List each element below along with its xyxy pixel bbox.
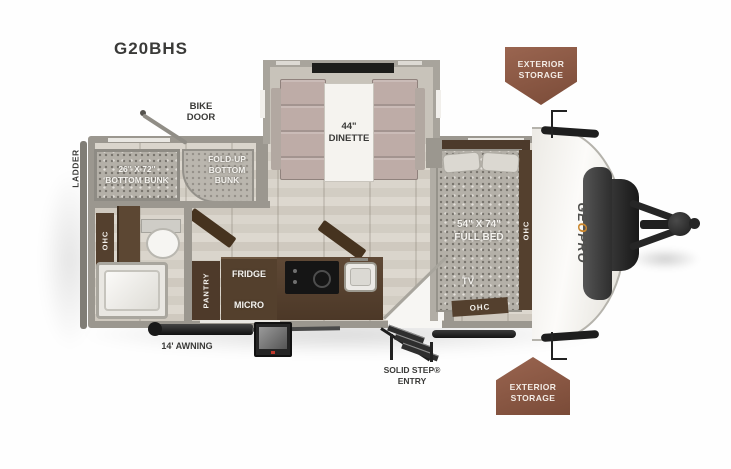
dinette-rear-window (312, 63, 394, 73)
full-bed-label: 54" X 74" FULL BED (436, 219, 522, 244)
geo-pro-logo: GEOPRO (574, 181, 590, 285)
exterior-tv-light (271, 351, 275, 354)
exterior-storage-label-top: EXTERIOR STORAGE (518, 59, 565, 82)
wardrobe-cabinet (117, 206, 140, 266)
bathroom-ohc-label: OHC (101, 230, 110, 250)
pantry-label: PANTRY (202, 273, 211, 309)
toilet (146, 228, 180, 259)
pillow (442, 151, 481, 173)
dinette-bench-left (280, 79, 326, 180)
awning-roller (151, 324, 253, 335)
cap-corner-mark-bottom (551, 332, 567, 360)
dinette-bench-right (372, 79, 418, 180)
awning-label: 14' AWNING (144, 341, 230, 351)
dinette-table: 44" DINETTE (324, 83, 374, 182)
bottom-bunk: 26" X 72" BOTTOM BUNK (94, 149, 180, 201)
dinette-armrest-left (271, 88, 281, 170)
model-title: G20BHS (103, 39, 199, 59)
dinette-right-window (436, 90, 441, 118)
hitch-shadow (630, 248, 700, 270)
dinette-left-window (260, 90, 265, 118)
exterior-tv-screen (259, 327, 287, 349)
bed-foot-ohc-label: OHC (469, 302, 490, 312)
brand-text: PRO (575, 233, 589, 263)
bottom-bunk-label: 26" X 72" BOTTOM BUNK (105, 164, 169, 186)
stove-cooktop (285, 261, 339, 294)
sink-basin (350, 268, 371, 286)
fridge-micro-cabinet: FRIDGE MICRO (221, 257, 277, 320)
stove-knob (293, 269, 297, 273)
brand-o-accent: O (575, 223, 589, 234)
micro-label: MICRO (234, 300, 264, 310)
stove-knob (293, 280, 297, 284)
pillow (481, 152, 519, 174)
exterior-storage-label-bottom: EXTERIOR STORAGE (510, 382, 557, 405)
bike-door-label: BIKE DOOR (173, 101, 229, 124)
tv-label: TV (450, 276, 486, 287)
brand-text: GE (575, 203, 589, 223)
exterior-storage-badge-top: EXTERIOR STORAGE (505, 47, 577, 105)
fridge-label: FRIDGE (232, 269, 266, 279)
entry-label: SOLID STEP® ENTRY (376, 365, 448, 387)
floorplan-canvas: G20BHS 44" DINETTE 26" X 72" BOTTOM BUNK… (0, 0, 731, 469)
hitch-ball-knob (689, 218, 700, 229)
stove-burner (313, 270, 331, 288)
step-leg (390, 334, 393, 360)
exterior-tv (254, 322, 292, 357)
bathroom-wall (184, 205, 192, 321)
dinette-armrest-right (415, 88, 425, 170)
bathroom-overhead-cabinet: OHC (96, 213, 114, 267)
exterior-storage-badge-bottom: EXTERIOR STORAGE (496, 357, 570, 415)
shower-pan (104, 270, 160, 311)
shower (96, 262, 168, 319)
dinette-label: 44" DINETTE (329, 121, 370, 145)
pantry-cabinet: PANTRY (192, 261, 220, 320)
dinette-top-window-left (276, 61, 300, 65)
kitchen-sink (344, 262, 377, 292)
sink-faucet (350, 258, 368, 261)
bed-side-ohc-label: OHC (522, 220, 531, 240)
awning-end-cap (148, 322, 162, 336)
rear-window (108, 138, 170, 142)
step-leg (430, 342, 433, 362)
entry-side-awning-bar (432, 330, 516, 338)
cap-corner-mark-top (551, 110, 567, 138)
bedroom-corner-wall (426, 138, 442, 168)
fold-up-bunk-label: FOLD-UP BOTTOM BUNK (196, 154, 258, 186)
ladder-label: LADDER (71, 146, 84, 192)
dinette-top-window-right (398, 61, 422, 65)
